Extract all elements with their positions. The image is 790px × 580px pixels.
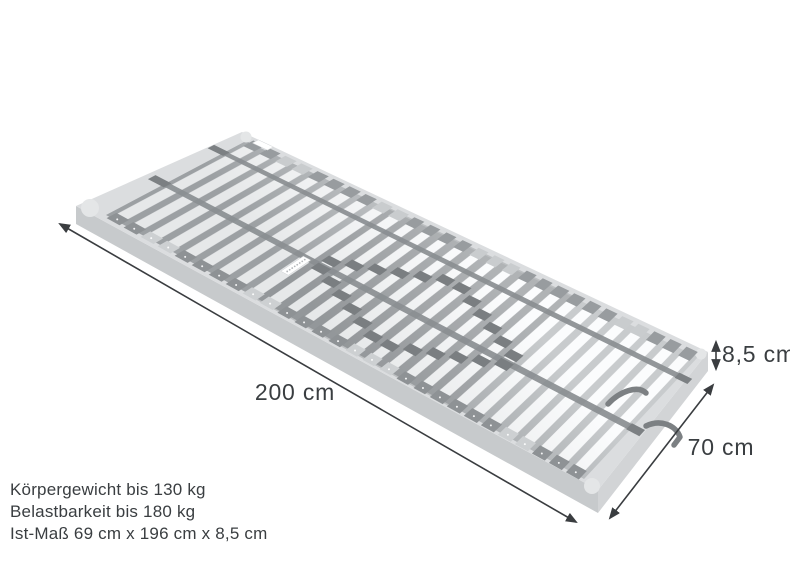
spec-line-load-capacity: Belastbarkeit bis 180 kg bbox=[10, 501, 267, 523]
label-dot bbox=[304, 259, 306, 261]
holder-pin bbox=[269, 303, 271, 305]
holder-pin bbox=[388, 368, 390, 370]
frame-corner-cap bbox=[696, 349, 707, 360]
label-dot bbox=[299, 262, 301, 264]
length-dimension-label: 200 cm bbox=[255, 379, 335, 405]
holder-pin bbox=[524, 443, 526, 445]
spec-line-actual-size: Ist-Maß 69 cm x 196 cm x 8,5 cm bbox=[10, 523, 267, 545]
holder-pin bbox=[371, 359, 373, 361]
label-dot bbox=[289, 269, 291, 271]
holder-pin bbox=[354, 350, 356, 352]
holder-pin bbox=[286, 312, 288, 314]
holder-pin bbox=[235, 284, 237, 286]
spec-text-block: Körpergewicht bis 130 kg Belastbarkeit b… bbox=[10, 479, 267, 544]
holder-pin bbox=[320, 331, 322, 333]
holder-pin bbox=[541, 453, 543, 455]
label-dot bbox=[294, 265, 296, 267]
label-dot bbox=[291, 267, 293, 269]
frame-corner-cap bbox=[241, 132, 252, 143]
holder-pin bbox=[252, 293, 254, 295]
holder-pin bbox=[558, 462, 560, 464]
height-dimension: 8,5 cm bbox=[716, 341, 790, 369]
holder-pin bbox=[473, 415, 475, 417]
product-dimension-diagram: 200 cm 70 cm 8,5 cm Körpergewicht bis 13… bbox=[0, 0, 790, 580]
holder-pin bbox=[167, 246, 169, 248]
holder-pin bbox=[490, 424, 492, 426]
holder-pin bbox=[116, 218, 118, 220]
holder-pin bbox=[456, 406, 458, 408]
slatted-bed-base bbox=[76, 132, 708, 514]
holder-pin bbox=[405, 378, 407, 380]
spec-line-body-weight: Körpergewicht bis 130 kg bbox=[10, 479, 267, 501]
holder-pin bbox=[184, 256, 186, 258]
frame-corner-cap bbox=[584, 478, 600, 494]
holder-pin bbox=[337, 340, 339, 342]
holder-pin bbox=[201, 265, 203, 267]
height-dimension-label: 8,5 cm bbox=[722, 341, 790, 367]
holder-pin bbox=[218, 275, 220, 277]
holder-pin bbox=[507, 434, 509, 436]
label-dot bbox=[286, 271, 288, 273]
label-dot bbox=[296, 264, 298, 266]
holder-pin bbox=[575, 471, 577, 473]
holder-pin bbox=[439, 396, 441, 398]
holder-pin bbox=[133, 228, 135, 230]
width-dimension-label: 70 cm bbox=[688, 434, 755, 460]
frame-corner-cap bbox=[81, 199, 99, 217]
holder-pin bbox=[422, 387, 424, 389]
holder-pin bbox=[150, 237, 152, 239]
holder-pin bbox=[303, 321, 305, 323]
label-dot bbox=[301, 260, 303, 262]
